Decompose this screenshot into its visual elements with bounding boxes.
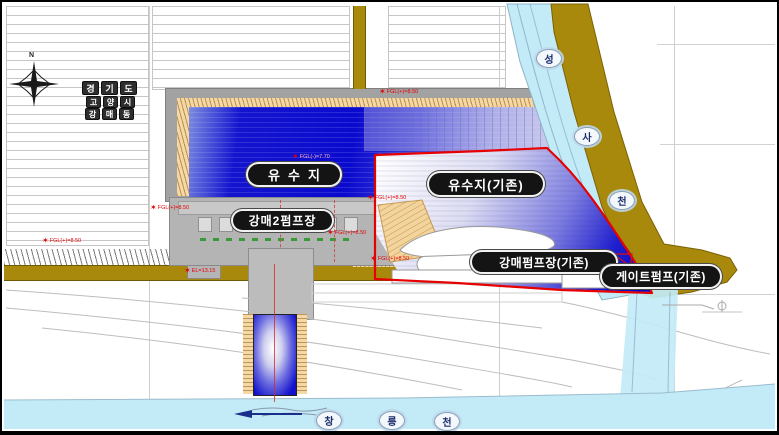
marker-star-icon: ✶: [292, 153, 299, 161]
outfall-channel-water: [253, 314, 297, 396]
misc-outlines: [312, 284, 562, 302]
seongsa-char-1: 성: [536, 49, 562, 68]
location-char: 동: [119, 108, 134, 120]
location-char: 고: [86, 96, 101, 108]
marker-star-icon: ✶: [184, 267, 191, 275]
location-row-dong: 강 매 동: [85, 108, 134, 120]
marker-star-icon: ✶: [42, 237, 49, 245]
location-char: 시: [120, 96, 135, 108]
marker-star-icon: ✶: [370, 255, 377, 263]
label-basin-existing-text: 유수지(기존): [448, 175, 523, 194]
marker-text: EL=13.15: [192, 268, 216, 274]
grid-line-vertical: [149, 6, 150, 427]
location-char: 도: [120, 81, 137, 95]
basin-water-vstripes: [364, 107, 552, 151]
compass-rose-icon: [8, 60, 62, 110]
marker-star-icon: ✶: [150, 204, 157, 212]
marker-text: FGL(+)=8.50: [50, 238, 82, 244]
label-pump-new-text: 강매2펌프장: [249, 212, 317, 229]
level-marker: ✶FGL(+)=8.50: [367, 194, 406, 202]
label-pump-existing-text: 강매펌프장(기존): [499, 254, 589, 271]
label-gate-pump: 게이트펌프(기존): [602, 266, 720, 287]
outfall-slope-left: [243, 314, 253, 394]
location-char: 강: [85, 108, 100, 120]
outfall-centerline: [274, 264, 275, 402]
level-marker: ✶FGL(+)=8.50: [42, 237, 81, 245]
marker-star-icon: ✶: [379, 88, 386, 96]
marker-text: FGL(+)=8.50: [378, 256, 410, 262]
label-basin-new-text: 유수지: [268, 165, 328, 184]
grid-line-horizontal: [660, 144, 775, 145]
location-row-city: 고 양 시: [86, 96, 135, 108]
marker-text: FGL(-)=7.70: [300, 154, 330, 160]
marker-text: FGL(+)=8.50: [335, 230, 367, 236]
compass-north-label: N: [29, 52, 34, 59]
grid-line-horizontal: [642, 294, 775, 295]
seongsa-char-3: 천: [609, 191, 635, 210]
marker-star-icon: ✶: [327, 229, 334, 237]
location-char: 양: [103, 96, 118, 108]
marker-star-icon: ✶: [367, 194, 374, 202]
grid-line-vertical: [674, 6, 675, 427]
level-marker: ✶FGL(+)=8.50: [370, 255, 409, 263]
level-marker: ✶EL=13.15: [184, 267, 215, 275]
location-row-province: 경 기 도: [82, 81, 137, 95]
level-marker: ✶FGL(+)=8.50: [150, 204, 189, 212]
site-plan-map: 유수지 유수지(기존) 강매2펌프장 강매펌프장(기존) 게이트펌프(기존) 성…: [0, 0, 779, 435]
field-lots-top-middle: [152, 6, 350, 90]
marker-text: FGL(+)=8.50: [375, 195, 407, 201]
road-vertical: [353, 6, 366, 89]
level-marker: ✶FGL(-)=7.70: [292, 153, 330, 161]
gate-channel: [620, 289, 678, 398]
seongsa-char-2: 사: [574, 127, 600, 146]
changneung-char-2: 릉: [379, 411, 405, 430]
changneung-char-1: 창: [316, 411, 342, 430]
grid-line-vertical: [499, 6, 500, 427]
grid-line-horizontal: [657, 44, 775, 45]
marker-text: FGL(+)=8.50: [387, 89, 419, 95]
changneung-char-3: 천: [434, 412, 460, 431]
field-lots-left: [6, 6, 149, 246]
approach-channel: [248, 248, 314, 320]
location-char: 경: [82, 81, 99, 95]
label-pump-existing: 강매펌프장(기존): [472, 252, 616, 272]
pump-green-dashes: [200, 238, 352, 241]
outfall-slope-right: [297, 314, 307, 394]
label-basin-new: 유수지: [248, 164, 340, 185]
location-char: 매: [102, 108, 117, 120]
field-lots-top-right: [388, 6, 506, 92]
level-marker: ✶FGL(+)=8.50: [379, 88, 418, 96]
level-marker: ✶FGL(+)=8.50: [327, 229, 366, 237]
location-char: 기: [101, 81, 118, 95]
road-slope-hatch: [4, 249, 170, 265]
label-basin-existing: 유수지(기존): [429, 173, 543, 195]
label-pump-new: 강매2펌프장: [233, 211, 332, 230]
contour-lines: [6, 290, 770, 428]
marker-text: FGL(+)=8.50: [158, 205, 190, 211]
label-gate-pump-text: 게이트펌프(기존): [616, 268, 706, 285]
